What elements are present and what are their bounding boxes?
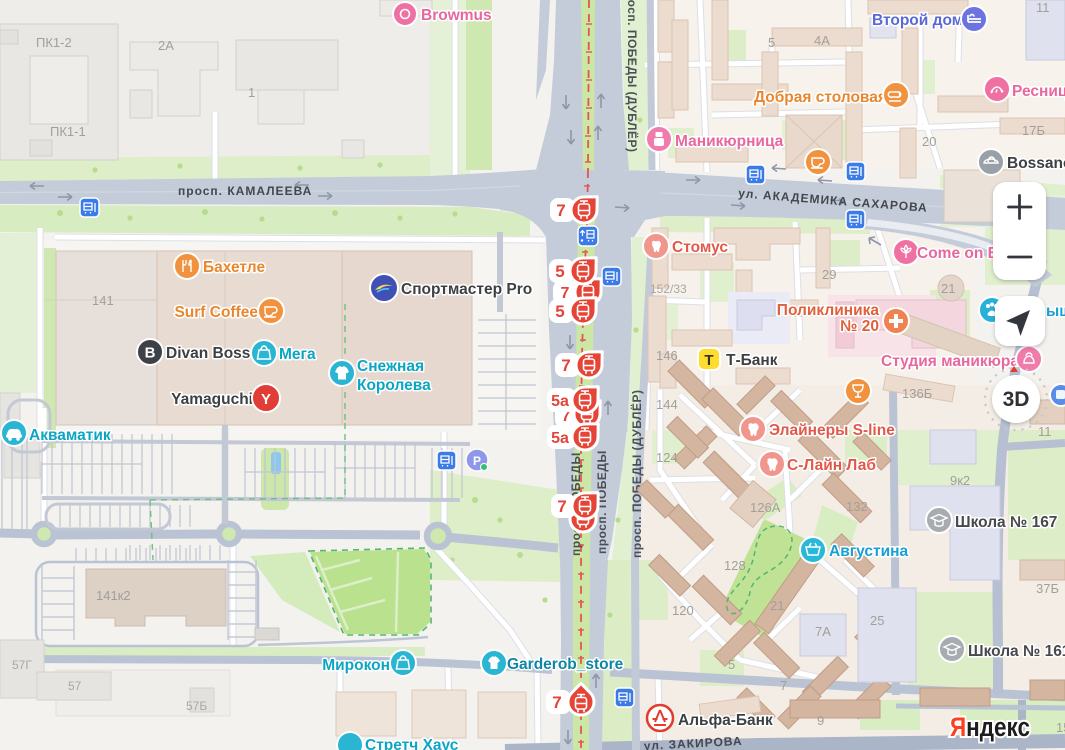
svg-text:5а: 5а [551,430,569,447]
svg-text:141: 141 [92,293,114,308]
svg-text:Маникюрница: Маникюрница [675,133,784,150]
svg-text:просп. КАМАЛЕЕВА: просп. КАМАЛЕЕВА [178,184,312,198]
svg-text:17Б: 17Б [1022,123,1045,138]
svg-text:2А: 2А [158,38,174,53]
svg-text:Второй дом: Второй дом [872,12,963,29]
svg-text:5: 5 [728,657,735,672]
svg-text:141к2: 141к2 [96,588,131,603]
svg-text:37Б: 37Б [1036,581,1059,596]
svg-text:Т-Банк: Т-Банк [726,352,778,369]
svg-text:Come on B: Come on B [917,245,999,262]
svg-text:Стретч Хаус: Стретч Хаус [365,737,459,750]
svg-text:11: 11 [1038,424,1052,439]
svg-text:Garderob_store: Garderob_store [507,656,624,673]
svg-text:11: 11 [1036,0,1050,15]
svg-text:21: 21 [941,281,955,296]
svg-text:5: 5 [768,35,775,50]
svg-text:Yamaguchi: Yamaguchi [171,391,253,408]
svg-text:Surf Coffee: Surf Coffee [174,304,258,321]
svg-text:9: 9 [817,713,824,728]
svg-text:ПК1-2: ПК1-2 [36,35,72,50]
svg-text:146: 146 [656,348,678,363]
svg-text:57Г: 57Г [12,658,32,672]
svg-text:152/33: 152/33 [650,282,687,296]
svg-text:7: 7 [561,356,570,375]
svg-text:Альфа-Банк: Альфа-Банк [678,712,773,729]
svg-text:ПК1-1: ПК1-1 [50,124,86,139]
svg-text:124: 124 [656,450,678,465]
svg-text:136Б: 136Б [902,386,932,401]
svg-text:Яндекс: Яндекс [950,712,1030,742]
svg-text:Элайнеры S-line: Элайнеры S-line [769,422,895,439]
svg-text:Browmus: Browmus [421,7,492,24]
svg-text:5: 5 [555,302,564,321]
svg-text:Bossano: Bossano [1007,155,1065,172]
svg-text:5: 5 [555,262,564,281]
svg-text:Divan Boss: Divan Boss [166,345,250,362]
svg-text:просп. ПОБЕДЫ (ДУБЛЁР): просп. ПОБЕДЫ (ДУБЛЁР) [625,0,640,153]
svg-text:Мега: Мега [279,346,316,363]
svg-text:29: 29 [822,267,836,282]
svg-text:57: 57 [68,679,82,693]
svg-text:Бахетле: Бахетле [203,259,265,276]
svg-text:57Б: 57Б [186,699,207,713]
svg-text:Снежная: Снежная [357,358,424,375]
svg-text:Студия маникюра: Студия маникюра [881,353,1019,370]
svg-text:Школа № 167: Школа № 167 [955,514,1057,531]
svg-text:С-Лайн Лаб: С-Лайн Лаб [787,457,876,474]
svg-text:7: 7 [557,497,566,516]
svg-text:120: 120 [672,603,694,618]
svg-text:132: 132 [846,499,868,514]
svg-text:Акваматик: Акваматик [29,427,111,444]
svg-text:25: 25 [870,613,884,628]
svg-text:Поликлиника: Поликлиника [777,302,880,319]
svg-text:7: 7 [556,201,565,220]
svg-text:126А: 126А [750,500,781,515]
svg-text:20: 20 [922,134,936,149]
svg-text:4А: 4А [814,33,830,48]
svg-text:Т: Т [704,352,713,369]
svg-text:Ресницы: Ресницы [1012,83,1065,100]
svg-text:№ 20: № 20 [840,318,879,335]
svg-text:ыш: ыш [1046,303,1065,320]
svg-text:Школа № 161: Школа № 161 [968,643,1065,660]
svg-text:5а: 5а [551,393,569,410]
svg-text:7: 7 [552,693,561,712]
svg-text:15: 15 [1056,720,1065,735]
svg-text:21: 21 [770,598,784,613]
svg-text:7А: 7А [815,624,831,639]
svg-text:9к2: 9к2 [950,473,970,488]
svg-text:просп. ПОБЕДЫ (ДУБЛЁР): просп. ПОБЕДЫ (ДУБЛЁР) [629,390,644,559]
svg-text:P: P [473,454,481,468]
svg-text:Королева: Королева [357,377,431,394]
svg-text:Добрая столовая: Добрая столовая [754,89,887,106]
svg-text:B: B [145,345,156,362]
svg-text:Y: Y [261,391,271,408]
svg-text:128: 128 [724,558,746,573]
svg-text:3D: 3D [1003,388,1030,411]
svg-text:1: 1 [248,85,255,100]
svg-text:144: 144 [656,397,678,412]
svg-text:7: 7 [780,678,787,693]
svg-text:Спортмастер Pro: Спортмастер Pro [401,281,532,298]
svg-text:Августина: Августина [829,543,909,560]
svg-text:Мирокон: Мирокон [322,657,390,674]
svg-text:Стомус: Стомус [672,239,728,256]
